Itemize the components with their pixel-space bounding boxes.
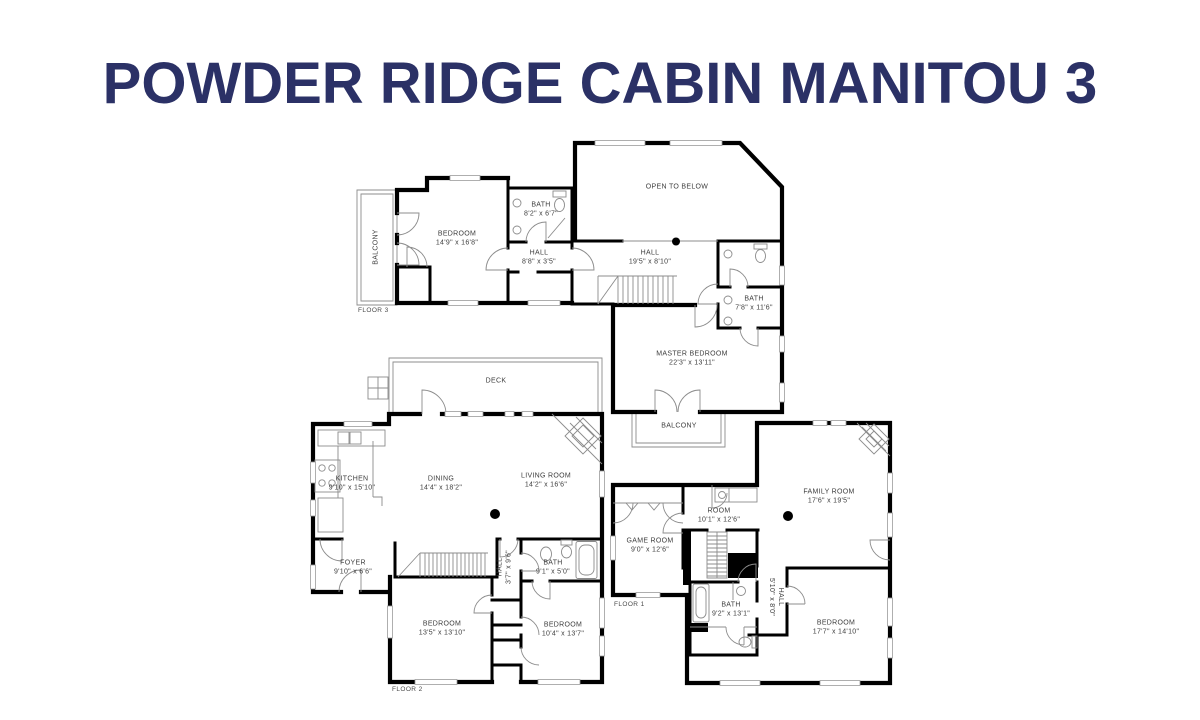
floor3-railing [622, 238, 718, 246]
room-name: DINING [428, 475, 454, 484]
room-name: ROOM [708, 507, 731, 516]
room-name: HALL [530, 249, 549, 258]
room-dims: 10'1" x 12'6" [698, 516, 740, 525]
floor3-tag: FLOOR 3 [358, 307, 389, 314]
room-name: MASTER BEDROOM [656, 350, 727, 359]
room-dims: 9'0" x 12'6" [631, 546, 669, 555]
room-dims: 9'1" x 5'0" [536, 568, 570, 577]
room-dims: 9'10" x 6'6" [334, 568, 372, 577]
room-name: BALCONY [661, 423, 697, 432]
room-name: KITCHEN [336, 475, 369, 484]
room-label-floor2-dining: DINING 14'4" x 18'2" [420, 475, 462, 493]
room-name: BATH [531, 201, 550, 210]
floor2-stairs [398, 553, 488, 577]
room-label-floor3-balcony-lower: BALCONY [661, 423, 697, 432]
room-label-floor2-bedroom-left: BEDROOM 13'5" x 13'10" [419, 620, 465, 638]
room-label-floor2-foyer: FOYER 9'10" x 6'6" [334, 559, 372, 577]
room-name: BEDROOM [544, 621, 582, 630]
room-label-floor1-family-room: FAMILY ROOM 17'6" x 19'5" [803, 488, 854, 506]
room-label-floor3-balcony: BALCONY [373, 229, 382, 265]
room-label-floor1-hall: HALL 5'10" x 8'0" [766, 578, 784, 616]
room-name: HALL [496, 558, 505, 577]
room-dims: 9'10" x 15'10" [329, 484, 375, 493]
room-name: BATH [744, 295, 763, 304]
room-dims: 17'6" x 19'5" [808, 497, 850, 506]
floor3-stairs [598, 276, 677, 304]
floor2-plan [310, 355, 615, 700]
room-name: FAMILY ROOM [803, 488, 854, 497]
floor1-fireplace-icon [857, 423, 890, 456]
room-name: BATH [543, 559, 562, 568]
room-dims: 17'7" x 14'10" [813, 628, 859, 637]
room-dims: 13'5" x 13'10" [419, 629, 465, 638]
room-name: BEDROOM [438, 230, 476, 239]
room-label-floor2-living-room: LIVING ROOM 14'2" x 16'6" [521, 472, 571, 490]
room-label-floor2-bedroom-right: BEDROOM 10'4" x 13'7" [542, 621, 584, 639]
floor1-tag: FLOOR 1 [614, 601, 645, 608]
room-label-floor2-hall: HALL 3'7" x 9'6" [496, 550, 514, 584]
room-name: BEDROOM [423, 620, 461, 629]
room-name: HALL [641, 249, 660, 258]
room-label-floor1-bedroom: BEDROOM 17'7" x 14'10" [813, 619, 859, 637]
room-label-floor1-room: ROOM 10'1" x 12'6" [698, 507, 740, 525]
column-dot [672, 238, 680, 246]
room-dims: 5'10" x 8'0" [766, 578, 775, 616]
room-name: HALL [775, 588, 784, 607]
floor1-stairs [707, 532, 727, 578]
floor2-windows [311, 412, 605, 685]
room-name: BEDROOM [817, 619, 855, 628]
room-label-floor3-open-to-below: OPEN TO BELOW [646, 184, 708, 193]
room-dims: 8'8" x 3'5" [522, 258, 556, 267]
room-dims: 3'7" x 9'6" [505, 550, 514, 584]
floor2-tag: FLOOR 2 [392, 686, 423, 693]
column-dot [490, 509, 500, 519]
room-label-floor2-kitchen: KITCHEN 9'10" x 15'10" [329, 475, 375, 493]
room-name: LIVING ROOM [521, 472, 571, 481]
room-name: GAME ROOM [626, 537, 673, 546]
room-dims: 14'2" x 16'6" [525, 481, 567, 490]
room-dims: 14'4" x 18'2" [420, 484, 462, 493]
room-dims: 19'5" x 8'10" [629, 258, 671, 267]
column-dot [783, 511, 793, 521]
room-label-floor3-bedroom: BEDROOM 14'9" x 16'8" [436, 230, 478, 248]
floorplan-page: POWDER RIDGE CABIN MANITOU 3 [0, 0, 1200, 720]
page-title: POWDER RIDGE CABIN MANITOU 3 [103, 50, 1098, 117]
room-label-floor2-deck: DECK [486, 378, 507, 387]
room-name: BATH [721, 601, 740, 610]
room-label-floor2-bath: BATH 9'1" x 5'0" [536, 559, 570, 577]
room-dims: 8'2" x 6'7" [524, 210, 558, 219]
floor1-plan [608, 418, 900, 695]
floor2-fireplace-icon [552, 414, 602, 464]
room-dims: 14'9" x 16'8" [436, 239, 478, 248]
room-name: FOYER [340, 559, 366, 568]
room-label-floor1-game-room: GAME ROOM 9'0" x 12'6" [626, 537, 673, 555]
room-dims: 10'4" x 13'7" [542, 630, 584, 639]
room-label-floor3-hall-main: HALL 19'5" x 8'10" [629, 249, 671, 267]
room-name: DECK [486, 378, 507, 387]
room-label-floor3-bath: BATH 8'2" x 6'7" [524, 201, 558, 219]
room-dims: 9'2" x 13'1" [712, 610, 750, 619]
room-name: OPEN TO BELOW [646, 184, 708, 193]
room-label-floor1-bath: BATH 9'2" x 13'1" [712, 601, 750, 619]
room-label-floor3-master-bedroom: MASTER BEDROOM 22'3" x 13'11" [656, 350, 727, 368]
floor2-walls [313, 414, 602, 682]
room-label-floor3-hall: HALL 8'8" x 3'5" [522, 249, 556, 267]
room-dims: 7'8" x 11'6" [735, 304, 773, 313]
room-dims: 22'3" x 13'11" [669, 359, 715, 368]
room-label-floor3-bath-main: BATH 7'8" x 11'6" [735, 295, 773, 313]
room-name: BALCONY [373, 229, 382, 265]
